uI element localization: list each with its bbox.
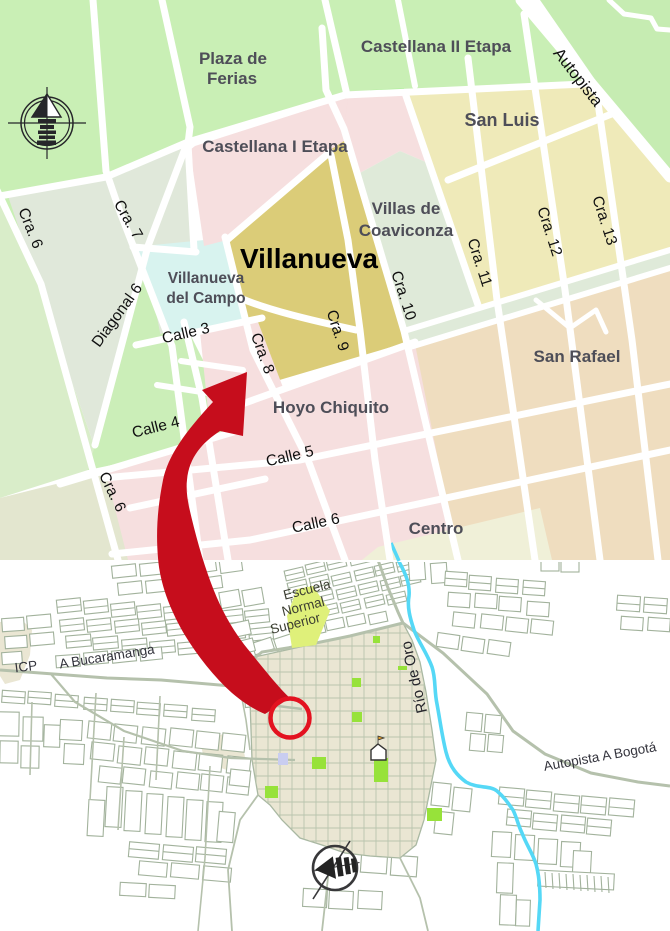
svg-text:Castellana II Etapa: Castellana II Etapa <box>361 37 512 56</box>
svg-text:Centro: Centro <box>409 519 464 538</box>
svg-text:del Campo: del Campo <box>166 290 245 307</box>
svg-text:Villas de: Villas de <box>372 199 441 218</box>
svg-text:Hoyo Chiquito: Hoyo Chiquito <box>273 398 389 417</box>
svg-text:San Rafael: San Rafael <box>534 347 621 366</box>
svg-text:Castellana I Etapa: Castellana I Etapa <box>202 137 348 156</box>
svg-text:San Luis: San Luis <box>464 110 539 130</box>
svg-text:Coaviconza: Coaviconza <box>359 221 454 240</box>
svg-text:Ferias: Ferias <box>207 69 257 88</box>
svg-text:Villanueva: Villanueva <box>168 270 245 287</box>
svg-text:ICP: ICP <box>14 658 38 676</box>
svg-text:Plaza de: Plaza de <box>199 49 267 68</box>
svg-text:Villanueva: Villanueva <box>240 243 378 274</box>
